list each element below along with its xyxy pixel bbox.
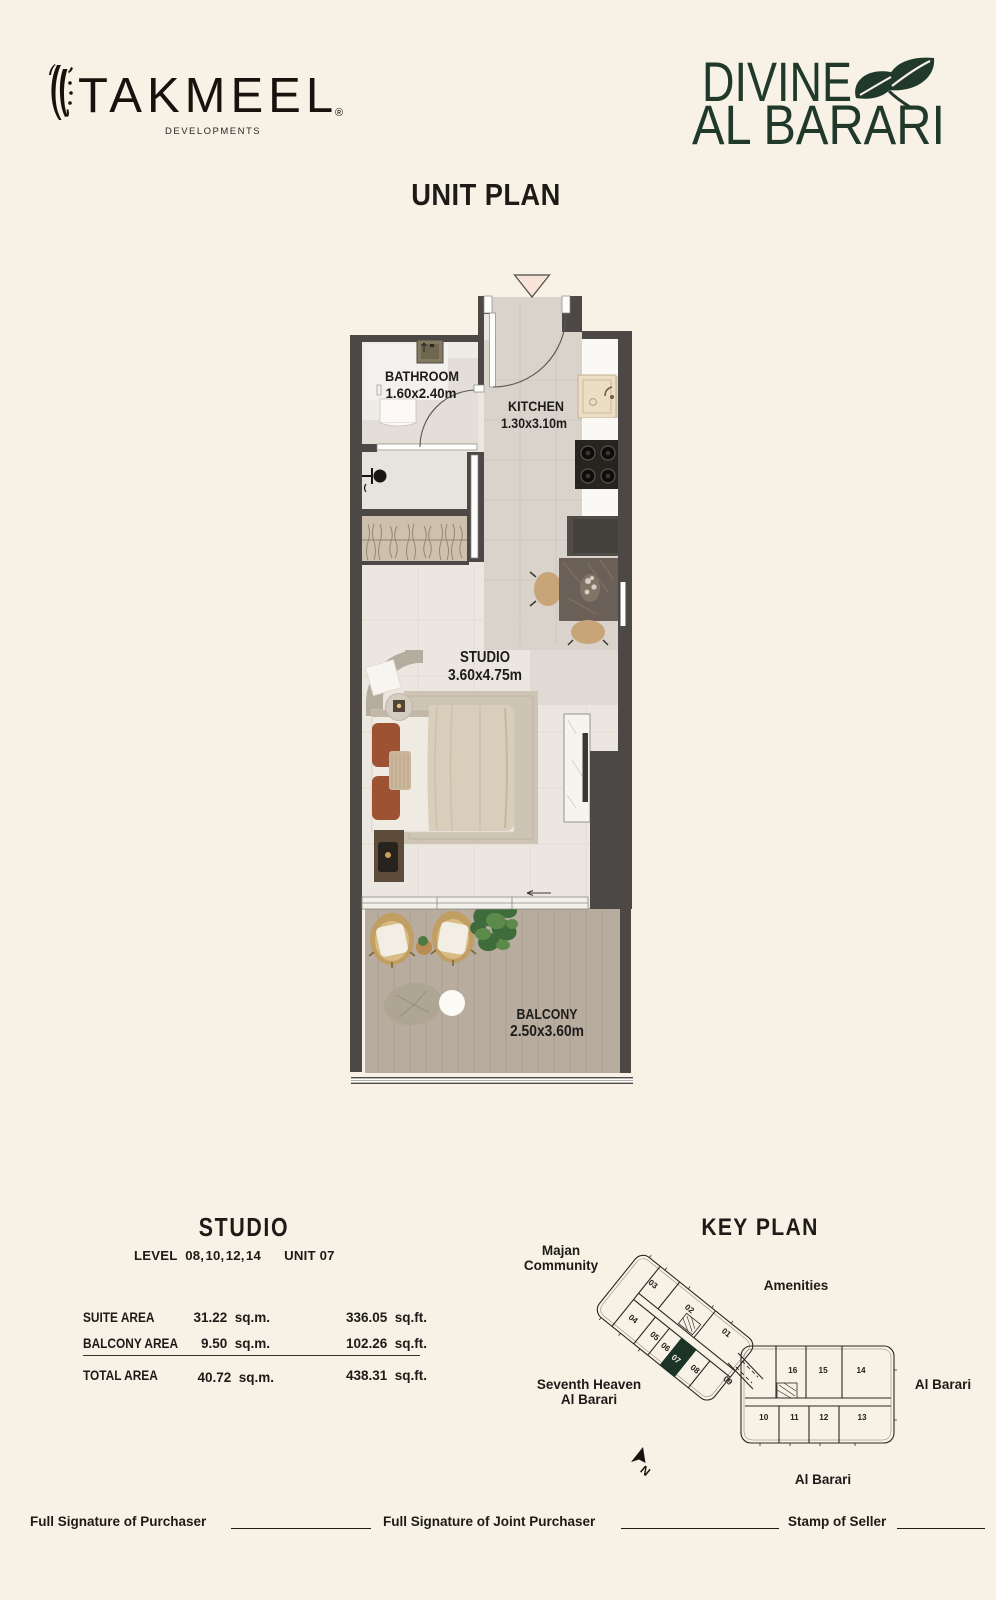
svg-text:1.30x3.10m: 1.30x3.10m (501, 416, 567, 431)
svg-text:2.50x3.60m: 2.50x3.60m (510, 1023, 584, 1040)
svg-text:12: 12 (819, 1413, 829, 1422)
svg-text:02: 02 (683, 1303, 696, 1316)
svg-text:10: 10 (759, 1413, 769, 1422)
svg-text:11: 11 (790, 1413, 799, 1422)
svg-text:13: 13 (857, 1413, 867, 1422)
svg-text:3.60x4.75m: 3.60x4.75m (448, 667, 522, 684)
svg-text:01: 01 (720, 1326, 733, 1339)
svg-text:1.60x2.40m: 1.60x2.40m (386, 386, 457, 401)
svg-text:BATHROOM: BATHROOM (385, 369, 459, 384)
svg-text:16: 16 (788, 1366, 798, 1375)
svg-text:06: 06 (659, 1341, 672, 1354)
svg-text:STUDIO: STUDIO (460, 649, 510, 666)
svg-text:AL BARARI: AL BARARI (692, 93, 945, 152)
svg-text:14: 14 (856, 1366, 866, 1375)
svg-text:BALCONY: BALCONY (517, 1006, 578, 1023)
svg-text:KITCHEN: KITCHEN (508, 399, 564, 414)
svg-text:03: 03 (647, 1278, 660, 1291)
svg-text:15: 15 (819, 1366, 829, 1375)
svg-text:N: N (638, 1463, 654, 1479)
svg-text:04: 04 (627, 1313, 640, 1326)
